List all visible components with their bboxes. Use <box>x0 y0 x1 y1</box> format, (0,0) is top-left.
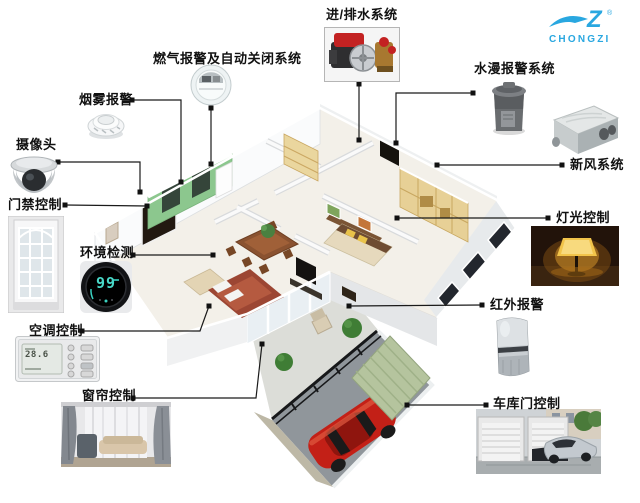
water-pump-image <box>324 27 400 82</box>
wall-frame <box>188 178 200 200</box>
garage-photo <box>476 409 601 474</box>
label-smoke-alarm: 烟雾报警 <box>79 93 133 107</box>
tv-unit <box>290 257 322 300</box>
environment-monitor-image: 99 <box>79 259 133 315</box>
gas-detector-image <box>190 63 233 108</box>
brand-logo: Z ® CHONGZI <box>549 12 631 52</box>
label-infrared: 红外报警 <box>490 298 544 312</box>
label-fresh-air: 新风系统 <box>570 158 624 172</box>
bath-black-panel <box>380 140 399 166</box>
fresh-air-image <box>542 102 622 162</box>
lamp-photo <box>531 226 619 286</box>
curtain-photo <box>61 402 171 467</box>
living-se-wall <box>330 272 437 346</box>
corner-shelf <box>284 134 318 181</box>
camera-image <box>9 153 59 198</box>
interior-walls <box>215 141 418 253</box>
smart-home-diagram: 99 28.6 <box>0 0 640 503</box>
label-gas-alarm: 燃气报警及自动关闭系统 <box>153 52 302 66</box>
logo-mark: Z <box>587 8 602 32</box>
curb <box>333 331 432 487</box>
ac-control-image: 28.6 <box>15 336 100 382</box>
glass-wall <box>247 272 330 344</box>
label-camera: 摄像头 <box>16 138 57 152</box>
label-garage-door: 车库门控制 <box>493 397 561 411</box>
driveway <box>272 331 432 487</box>
logo-brand-text: CHONGZI <box>549 34 631 45</box>
ne-wall-top <box>320 104 497 200</box>
dining-set <box>226 221 298 275</box>
patio-floor <box>247 272 378 420</box>
kitchen-block <box>148 154 232 229</box>
floor-slab <box>95 108 516 338</box>
door-access-image <box>8 216 64 313</box>
label-lighting: 灯光控制 <box>556 211 610 225</box>
wall-frame <box>106 222 118 244</box>
patio-furniture <box>275 308 362 371</box>
bedroom2 <box>324 203 392 266</box>
label-curtain: 窗帘控制 <box>82 389 136 403</box>
wardrobe-cabinet <box>400 168 468 242</box>
wall-top-outline <box>95 108 516 318</box>
wall-shelf <box>342 286 356 302</box>
front-door <box>142 191 176 246</box>
label-water-supply-drain: 进/排水系统 <box>326 8 398 22</box>
smoke-detector-image <box>86 108 126 140</box>
interior-walls-top <box>215 141 418 253</box>
bedroom1 <box>184 269 284 318</box>
garage-roof <box>352 336 430 420</box>
bay-window <box>438 282 460 308</box>
environment-display: 99 <box>93 274 119 292</box>
sw-wall <box>167 314 247 366</box>
label-door-access: 门禁控制 <box>8 198 62 212</box>
registered-mark: ® <box>607 10 612 17</box>
stone-strip <box>254 412 333 487</box>
red-car <box>303 391 404 480</box>
label-flood-alarm: 水漫报警系统 <box>474 62 555 76</box>
ac-display: 28.6 <box>25 350 49 360</box>
infrared-sensor-image <box>487 315 537 380</box>
bay-window <box>488 222 512 250</box>
patio-railing <box>272 331 381 424</box>
bay-window <box>462 252 486 280</box>
wave-icon <box>549 12 589 30</box>
flood-alarm-image <box>485 79 533 137</box>
label-environment: 环境检测 <box>80 246 134 260</box>
label-ac-control: 空调控制 <box>29 324 83 338</box>
